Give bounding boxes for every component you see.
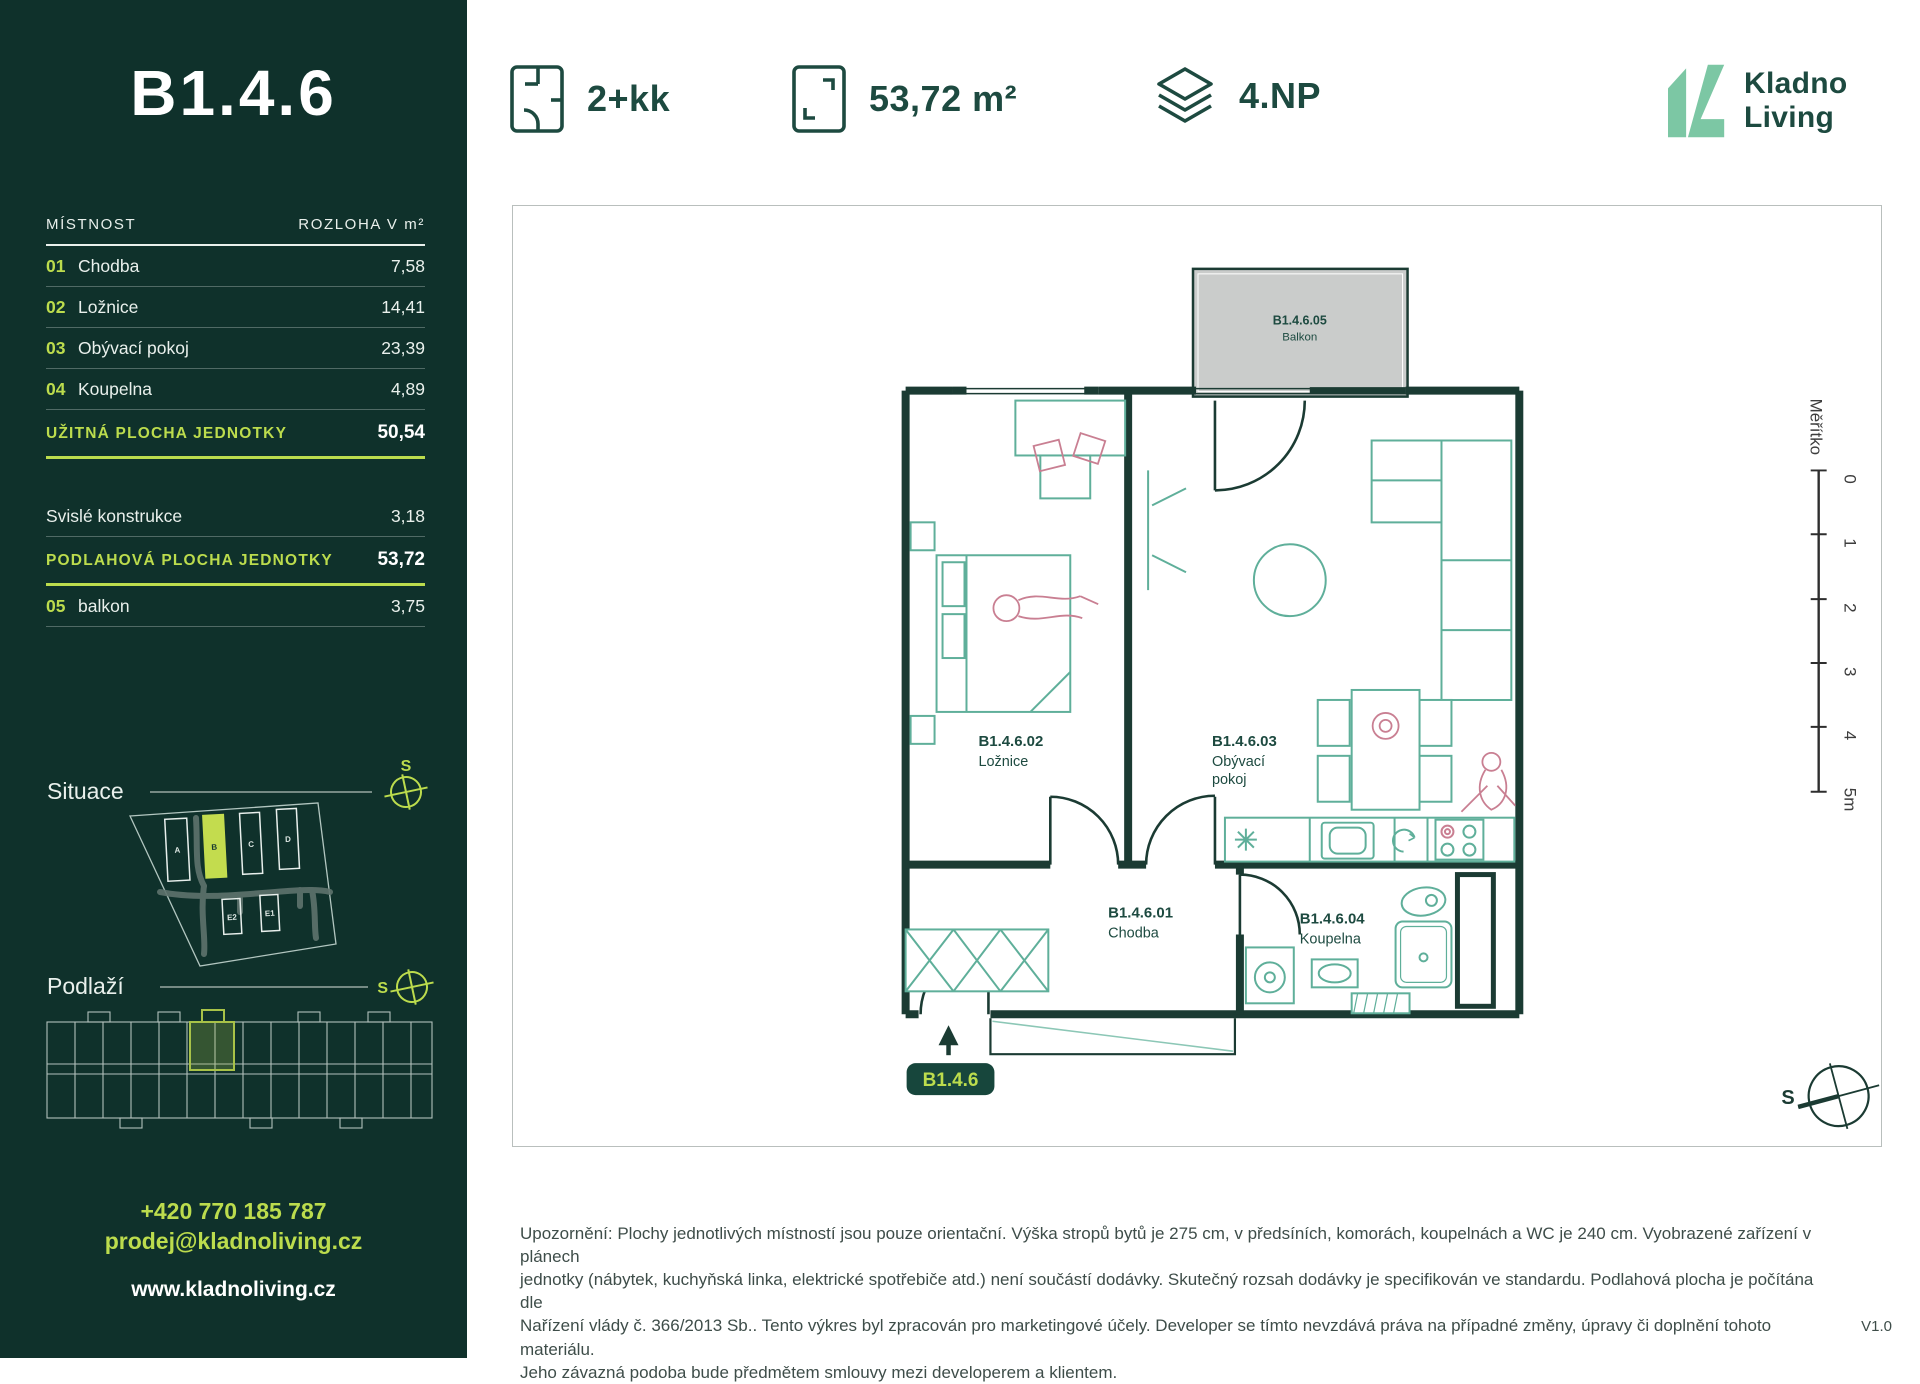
kladno-living-logo: Kladno Living bbox=[1668, 62, 1847, 140]
row-name: balkon bbox=[78, 596, 130, 617]
bedroom-furniture bbox=[911, 401, 1126, 744]
compass-letter: S bbox=[1781, 1087, 1794, 1109]
logo-text: Kladno Living bbox=[1744, 67, 1847, 135]
floorplan-icon bbox=[509, 64, 565, 134]
row-value: 4,89 bbox=[391, 379, 425, 400]
table-row: 03 Obývací pokoj 23,39 bbox=[46, 328, 425, 369]
loznice-name: Ložnice bbox=[978, 754, 1028, 770]
building-b-label: B bbox=[211, 843, 217, 852]
balkon-name: Balkon bbox=[1282, 332, 1317, 344]
layers-icon bbox=[1153, 64, 1217, 128]
row-number: 02 bbox=[46, 297, 78, 318]
loznice-code: B1.4.6.02 bbox=[978, 733, 1043, 750]
building-d-label: D bbox=[285, 835, 291, 844]
obyvaci-name1: Obývací bbox=[1212, 754, 1265, 770]
usable-area-label: UŽITNÁ PLOCHA JEDNOTKY bbox=[46, 425, 287, 443]
entrance-niche bbox=[990, 1018, 1234, 1054]
version-label: V1.0 bbox=[1861, 1318, 1892, 1335]
highlighted-unit bbox=[190, 1022, 234, 1070]
scale-tick: 5m bbox=[1841, 788, 1860, 812]
podlazi-compass-icon: S bbox=[160, 965, 437, 1009]
scale-tick: 2 bbox=[1841, 603, 1860, 612]
row-value: 14,41 bbox=[381, 297, 425, 318]
scale-tick: 3 bbox=[1841, 667, 1860, 676]
row-value: 3,75 bbox=[391, 596, 425, 617]
unit-badge-label: B1.4.6 bbox=[923, 1070, 979, 1091]
table-row: 01 Chodba 7,58 bbox=[46, 246, 425, 287]
balkon-code: B1.4.6.05 bbox=[1273, 314, 1327, 328]
compass-icon: S bbox=[1781, 1052, 1881, 1139]
floor-area-row: PODLAHOVÁ PLOCHA JEDNOTKY 53,72 bbox=[46, 537, 425, 586]
unit-badge: B1.4.6 bbox=[907, 1063, 995, 1095]
obyvaci-name2: pokoj bbox=[1212, 772, 1247, 788]
sidebar: B1.4.6 MÍSTNOST ROZLOHA V m² 01 Chodba 7… bbox=[0, 0, 467, 1358]
row-name: Ložnice bbox=[78, 297, 138, 318]
scale-tick: 1 bbox=[1841, 538, 1860, 547]
shaft bbox=[1457, 875, 1493, 1007]
disposition-item: 2+kk bbox=[509, 64, 670, 134]
chodba-code: B1.4.6.01 bbox=[1108, 904, 1173, 921]
table-row: 04 Koupelna 4,89 bbox=[46, 369, 425, 410]
situace-compass-letter: S bbox=[401, 758, 412, 775]
balcony-row: 05 balkon 3,75 bbox=[46, 586, 425, 627]
bathroom-fixtures bbox=[1246, 885, 1452, 1014]
sidebar-graphics: S A B C D E2 bbox=[0, 0, 467, 1358]
unit-title: B1.4.6 bbox=[0, 56, 467, 130]
row-value: 7,58 bbox=[391, 256, 425, 277]
building-e2-label: E2 bbox=[227, 913, 238, 923]
scale-tick: 0 bbox=[1841, 474, 1860, 483]
disclaimer-text: Upozornění: Plochy jednotlivých místnost… bbox=[520, 1222, 1820, 1384]
area-label: 53,72 m² bbox=[869, 78, 1017, 120]
col-room-header: MÍSTNOST bbox=[46, 216, 136, 233]
scale-tick: 4 bbox=[1841, 731, 1860, 740]
building-c-label: C bbox=[248, 840, 254, 849]
disposition-label: 2+kk bbox=[587, 78, 670, 120]
vertical-structures-row: Svislé konstrukce 3,18 bbox=[46, 496, 425, 537]
building-a-label: A bbox=[174, 846, 180, 855]
row-number: 04 bbox=[46, 379, 78, 400]
phone-link[interactable]: +420 770 185 787 bbox=[0, 1198, 467, 1225]
site-map: A B C D E2 E1 bbox=[130, 803, 336, 966]
podlazi-compass-letter: S bbox=[377, 980, 388, 997]
website-link[interactable]: www.kladnoliving.cz bbox=[0, 1278, 467, 1302]
row-number: 01 bbox=[46, 256, 78, 277]
floor-label: 4.NP bbox=[1239, 75, 1321, 117]
person-figure bbox=[1461, 753, 1515, 812]
chodba-name: Chodba bbox=[1108, 925, 1160, 941]
living-room-furniture bbox=[1148, 441, 1511, 810]
row-name: Koupelna bbox=[78, 379, 152, 400]
floor-item: 4.NP bbox=[1153, 64, 1321, 128]
area-item: 53,72 m² bbox=[791, 64, 1017, 134]
scale-title: Měřítko bbox=[1807, 399, 1826, 456]
table-header: MÍSTNOST ROZLOHA V m² bbox=[46, 216, 425, 246]
balcony: B1.4.6.05 Balkon bbox=[1193, 269, 1408, 397]
building-b-highlight bbox=[203, 814, 227, 878]
row-name: Chodba bbox=[78, 256, 139, 277]
floor-area-value: 53,72 bbox=[377, 549, 425, 571]
situace-label: Situace bbox=[47, 778, 124, 805]
floor-strip-plan bbox=[47, 1010, 432, 1128]
usable-area-row: UŽITNÁ PLOCHA JEDNOTKY 50,54 bbox=[46, 410, 425, 459]
row-name: Obývací pokoj bbox=[78, 338, 189, 359]
row-number: 05 bbox=[46, 596, 78, 617]
building-e1-label: E1 bbox=[265, 909, 276, 919]
row-value: 23,39 bbox=[381, 338, 425, 359]
floor-plan-drawing: B1.4.6.05 Balkon bbox=[513, 206, 1881, 1146]
hallway-wardrobe bbox=[906, 929, 1049, 991]
entry-arrow-icon bbox=[939, 1025, 959, 1055]
col-area-header: ROZLOHA V m² bbox=[298, 216, 425, 233]
podlazi-label: Podlaží bbox=[47, 973, 124, 1000]
table-row: 02 Ložnice 14,41 bbox=[46, 287, 425, 328]
scale-bar: Měřítko 0 1 2 3 4 5m bbox=[1807, 399, 1860, 812]
row-number: 03 bbox=[46, 338, 78, 359]
logo-mark-icon bbox=[1668, 62, 1726, 140]
koupelna-code: B1.4.6.04 bbox=[1300, 910, 1366, 927]
obyvaci-code: B1.4.6.03 bbox=[1212, 733, 1277, 750]
area-icon bbox=[791, 64, 847, 134]
row-name: Svislé konstrukce bbox=[46, 506, 182, 527]
usable-area-value: 50,54 bbox=[377, 422, 425, 444]
floor-plan: B1.4.6.05 Balkon bbox=[512, 205, 1882, 1147]
floor-area-label: PODLAHOVÁ PLOCHA JEDNOTKY bbox=[46, 552, 333, 570]
situace-compass-icon: S bbox=[150, 758, 431, 814]
koupelna-name: Koupelna bbox=[1300, 931, 1362, 947]
row-value: 3,18 bbox=[391, 506, 425, 527]
room-area-table: MÍSTNOST ROZLOHA V m² 01 Chodba 7,58 02 … bbox=[46, 216, 425, 627]
email-link[interactable]: prodej@kladnoliving.cz bbox=[0, 1228, 467, 1255]
